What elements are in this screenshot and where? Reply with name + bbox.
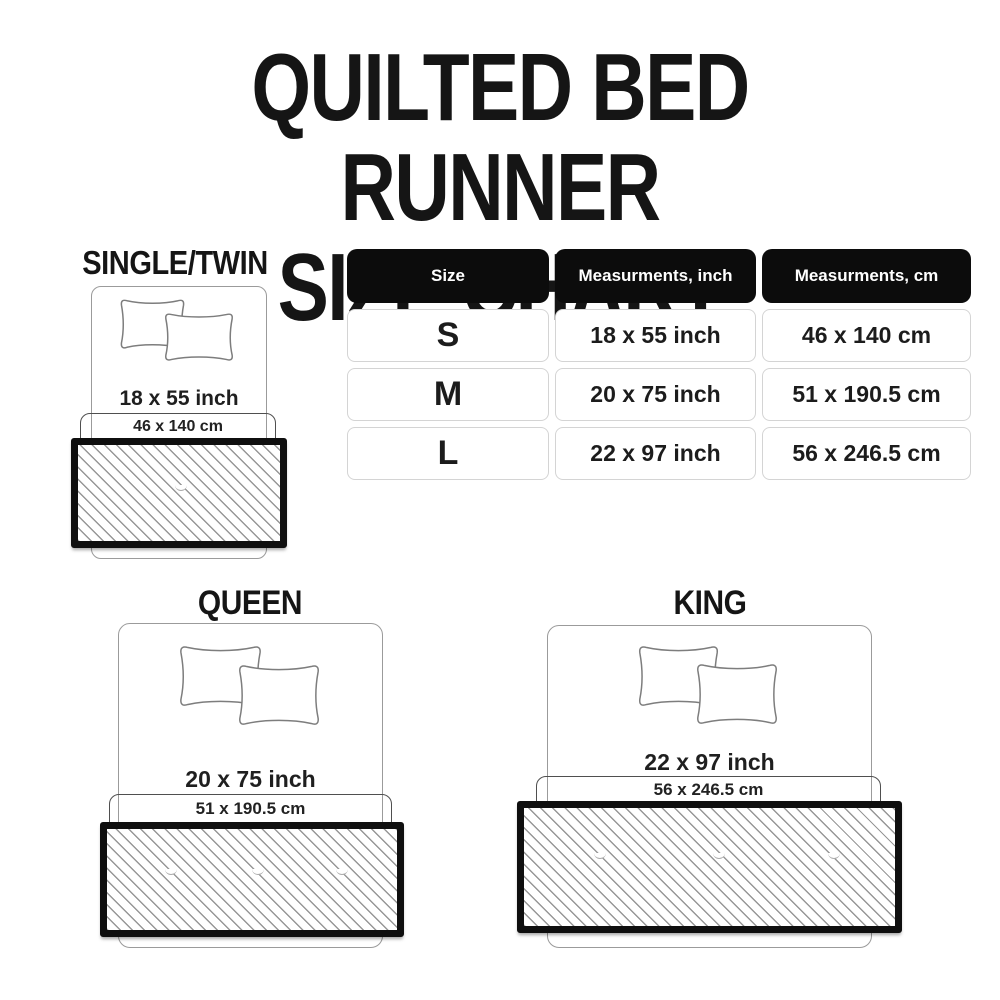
table-row-l-size: L	[347, 427, 549, 480]
single-twin-cm-label: 46 x 140 cm	[80, 418, 276, 436]
stitch-mark	[594, 853, 606, 859]
stitch-mark	[828, 853, 840, 859]
queen-pillow-right-icon	[233, 662, 325, 728]
diagram-single-twin-label: SINGLE/TWIN	[52, 244, 298, 282]
size-chart-infographic: QUILTED BED RUNNER SIZE CHART SINGLE/TWI…	[0, 0, 1000, 1000]
single-twin-inch-label: 18 x 55 inch	[91, 387, 267, 411]
single-twin-runner-swatch	[71, 438, 287, 548]
queen-cm-label: 51 x 190.5 cm	[109, 799, 392, 819]
diagram-king-label: KING	[587, 584, 833, 623]
stitch-mark	[165, 869, 177, 875]
table-row-m-inch: 20 x 75 inch	[555, 368, 756, 421]
king-cm-label: 56 x 246.5 cm	[536, 780, 881, 800]
diagram-queen-label: QUEEN	[127, 584, 373, 623]
stitch-mark	[713, 853, 725, 859]
size-table-header-cm: Measurments, cm	[762, 249, 971, 303]
queen-inch-label: 20 x 75 inch	[118, 766, 383, 793]
page-title-line1: QUILTED BED RUNNER	[100, 38, 900, 238]
table-row-l-cm: 56 x 246.5 cm	[762, 427, 971, 480]
king-pillow-right-icon	[691, 661, 783, 727]
queen-runner-swatch	[100, 822, 404, 937]
table-row-s-cm: 46 x 140 cm	[762, 309, 971, 362]
table-row-m-cm: 51 x 190.5 cm	[762, 368, 971, 421]
king-runner-swatch	[517, 801, 902, 933]
size-table: Size Measurments, inch Measurments, cm S…	[347, 249, 971, 480]
table-row-l-inch: 22 x 97 inch	[555, 427, 756, 480]
table-row-s-inch: 18 x 55 inch	[555, 309, 756, 362]
size-table-header-size: Size	[347, 249, 549, 303]
stitch-mark	[252, 869, 264, 875]
table-row-m-size: M	[347, 368, 549, 421]
stitch-mark	[336, 869, 348, 875]
size-table-header-inch: Measurments, inch	[555, 249, 756, 303]
table-row-s-size: S	[347, 309, 549, 362]
single-twin-pillow-right-icon	[160, 311, 238, 363]
stitch-mark	[175, 485, 187, 491]
king-inch-label: 22 x 97 inch	[547, 749, 872, 776]
